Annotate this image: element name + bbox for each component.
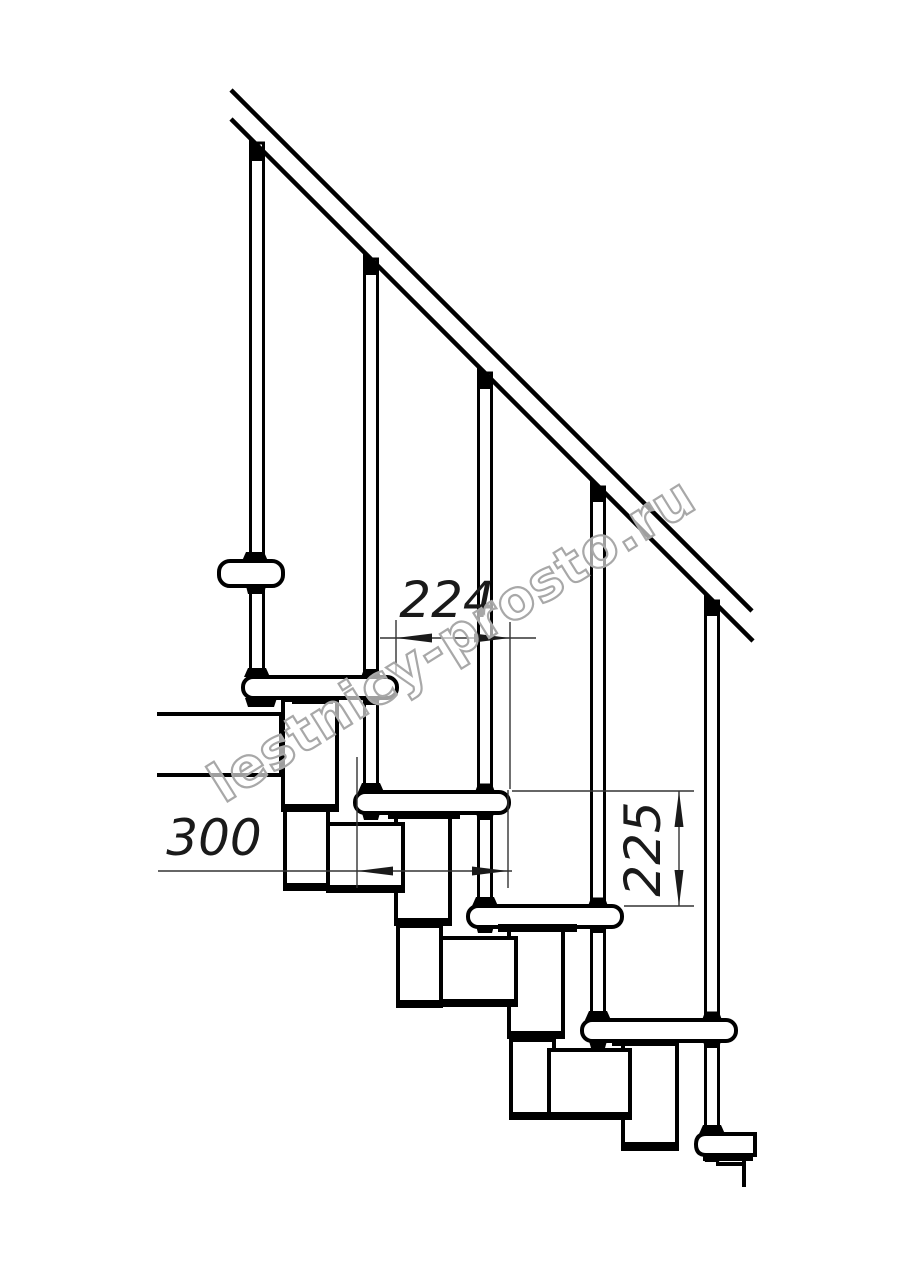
tread-3 — [468, 906, 622, 927]
top-bracket — [219, 561, 283, 586]
staircase-drawing-page: 224 300 225 lestnicy-prosto.ru — [0, 0, 914, 1280]
baluster-5-upper — [706, 601, 719, 1013]
baluster-4-lower — [592, 928, 605, 1015]
socket-2a — [328, 824, 403, 891]
tread-2 — [355, 792, 509, 813]
socket-2b — [398, 926, 441, 1006]
baluster-2-upper — [365, 259, 378, 671]
watermark-text: lestnicy-prosto.ru — [197, 464, 706, 815]
staircase-diagram: 224 300 225 lestnicy-prosto.ru — [0, 0, 914, 1280]
socket-4a — [549, 1050, 630, 1118]
arrowhead-up-icon — [675, 791, 684, 827]
dim-tread-depth-label: 300 — [166, 809, 261, 867]
baluster-3-lower — [479, 814, 492, 901]
arrowhead-down-icon — [675, 870, 684, 906]
baluster-5-lower — [706, 1042, 719, 1129]
dim-riser-label: 225 — [614, 801, 672, 896]
baluster-1-lower — [251, 586, 264, 672]
tread-4 — [582, 1020, 736, 1041]
socket-1b — [285, 810, 328, 889]
tread-5 — [696, 1134, 755, 1155]
baluster-1-upper — [251, 143, 264, 561]
bottom-notch — [716, 1161, 744, 1187]
socket-3a — [441, 938, 516, 1005]
